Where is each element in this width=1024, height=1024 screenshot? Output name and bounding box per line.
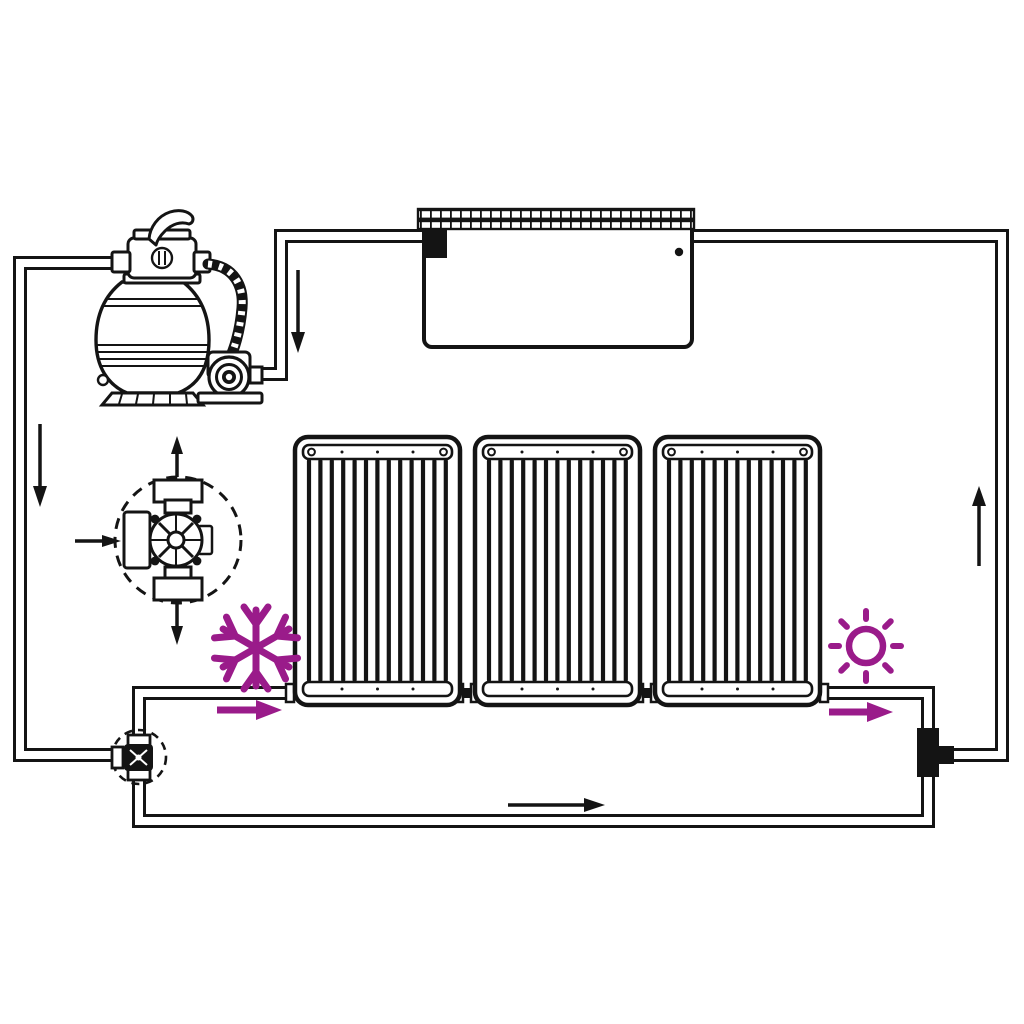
pool-coping-band	[418, 209, 694, 229]
arrow-down-main-left-riser	[33, 424, 47, 507]
sun-icon	[831, 611, 901, 681]
arrow-up-return-riser	[972, 486, 986, 566]
bypass-port-left	[112, 747, 123, 768]
valve-port-left	[112, 252, 130, 272]
pool-return-dot	[675, 248, 683, 256]
solar-panel-1	[295, 437, 460, 705]
sand-filter-pump	[90, 211, 262, 405]
solar-panel-3	[655, 437, 820, 705]
valve-bolt	[151, 515, 160, 524]
valve-left-port	[124, 512, 150, 568]
solar-panel-2	[475, 437, 640, 705]
solar-panels	[286, 437, 828, 705]
valve-bolt	[193, 515, 202, 524]
valve-top-neck	[165, 500, 191, 513]
pipe-pool-to-pump	[249, 236, 430, 374]
pipe-bypass-run	[139, 772, 928, 821]
return-tee-fitting	[917, 728, 954, 777]
arrow-out-valve-detail-top	[171, 436, 183, 477]
diverter-valve-detail	[75, 436, 241, 645]
arrow-right-bottom-bypass	[508, 798, 605, 812]
drain-plug	[98, 375, 108, 385]
skimmer-inlet	[426, 229, 447, 258]
valve-bottom-port	[154, 578, 202, 600]
arrow-out-valve-detail-bottom	[171, 603, 183, 645]
valve-bolt	[193, 557, 202, 566]
arrow-down-pool-to-pump	[291, 270, 305, 353]
pool-basin	[424, 214, 692, 347]
bypass-valve	[112, 730, 166, 784]
pool	[418, 209, 694, 347]
valve-sight-glass	[152, 248, 172, 268]
bypass-hub	[136, 755, 142, 761]
snowflake-icon	[214, 607, 297, 689]
diagram-page	[0, 0, 1024, 1024]
valve-hub	[168, 532, 184, 548]
solar-pool-heating-diagram	[0, 0, 1024, 1024]
tee-body	[917, 728, 939, 777]
motor-base-plate	[198, 393, 262, 403]
tee-stub	[936, 746, 954, 764]
pipe-valve-to-panels	[139, 693, 292, 739]
motor-outlet-port	[250, 367, 262, 383]
arrow-cold-into-panels	[217, 700, 282, 720]
valve-bolt	[151, 557, 160, 566]
pump-volute-center	[226, 374, 232, 380]
arrow-hot-out-of-panels	[829, 702, 893, 722]
